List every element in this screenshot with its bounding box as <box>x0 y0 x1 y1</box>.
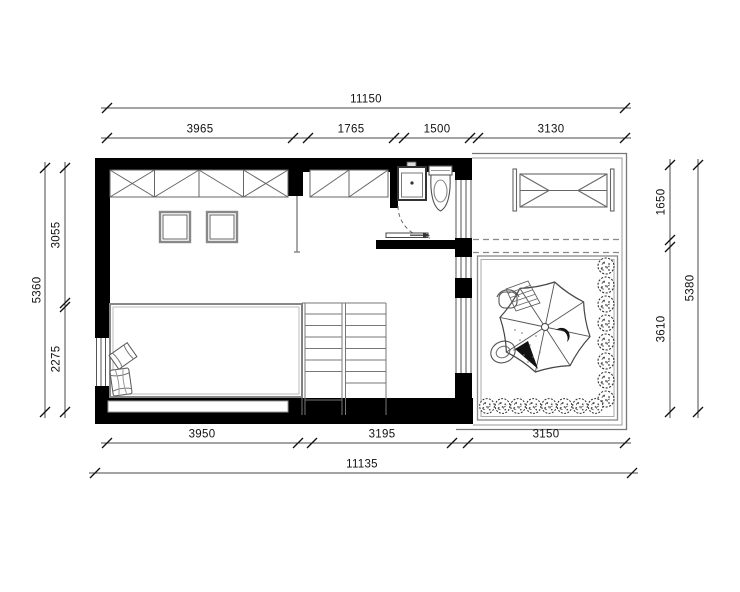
dim-label-left-overall: 5360 <box>32 277 44 304</box>
wardrobe-icon <box>110 170 288 197</box>
ottoman-squares <box>160 212 237 242</box>
floor-plan-canvas <box>0 0 740 592</box>
dim-label-right-seg1: 1650 <box>656 189 668 216</box>
planter-strip <box>473 240 621 253</box>
dim-label-bottom-overall: 11135 <box>346 459 378 471</box>
dim-label-bottom-seg2: 3195 <box>369 429 396 441</box>
bed-platform-icon <box>110 304 302 397</box>
shrub-row <box>480 258 614 413</box>
drying-rack-icon <box>513 169 614 211</box>
window-icon <box>108 401 288 412</box>
dim-label-left-seg1: 3055 <box>51 222 63 249</box>
dim-label-top-seg2: 1765 <box>338 124 365 136</box>
dim-label-top-seg4: 3130 <box>538 124 565 136</box>
dim-label-bottom-seg1: 3950 <box>189 429 216 441</box>
sliding-door-icon[interactable] <box>386 233 430 239</box>
dim-label-top-seg3: 1500 <box>424 124 451 136</box>
chair-icon <box>487 337 519 367</box>
umbrella-hatch-panel <box>506 281 540 311</box>
closet-icon <box>310 170 388 197</box>
parasol-table-icon <box>487 281 590 372</box>
dim-label-right-overall: 5380 <box>685 275 697 302</box>
dim-label-left-seg2: 2275 <box>51 346 63 373</box>
partition-wall <box>294 196 300 252</box>
dim-label-bottom-seg3: 3150 <box>533 429 560 441</box>
garden-border <box>478 256 618 420</box>
dim-label-right-seg2: 3610 <box>656 316 668 343</box>
toilet-icon <box>429 166 452 211</box>
dim-label-top-seg1: 3965 <box>187 124 214 136</box>
sink-icon <box>398 162 426 200</box>
dim-label-top-overall: 11150 <box>350 94 382 106</box>
floor-plan-page: 11150 3965 1765 1500 3130 3950 3195 3150… <box>0 0 740 592</box>
